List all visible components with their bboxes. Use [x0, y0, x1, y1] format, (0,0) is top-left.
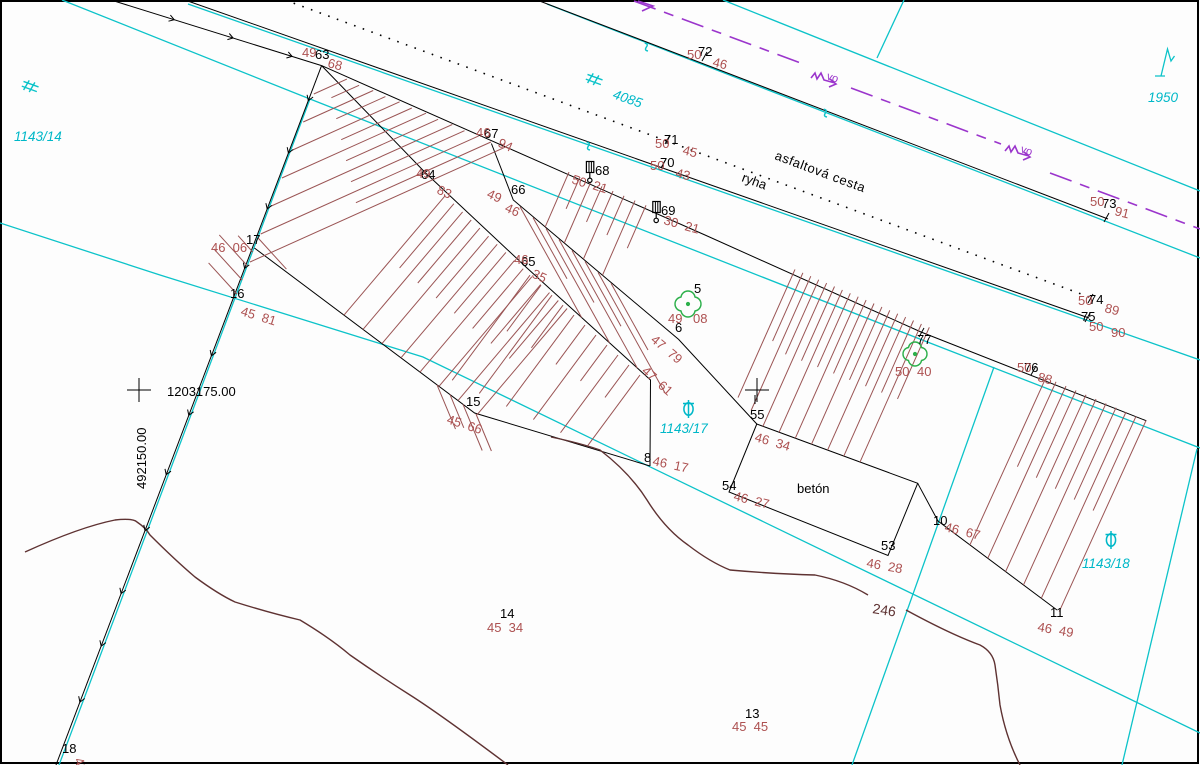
svg-text:15: 15 — [466, 394, 480, 409]
svg-text:55: 55 — [750, 407, 764, 422]
svg-text:14: 14 — [500, 606, 514, 621]
svg-text:49: 49 — [668, 311, 682, 326]
svg-text:11: 11 — [1050, 605, 1064, 620]
svg-text:50: 50 — [650, 158, 664, 173]
svg-text:betón: betón — [797, 481, 830, 496]
svg-text:50: 50 — [655, 136, 669, 151]
svg-text:50: 50 — [1078, 293, 1092, 308]
svg-text:53: 53 — [881, 538, 895, 553]
svg-text:45 45: 45 45 — [732, 719, 768, 734]
svg-text:50: 50 — [1090, 194, 1104, 209]
svg-text:1203175.00: 1203175.00 — [167, 384, 236, 399]
svg-text:18: 18 — [62, 741, 76, 756]
svg-text:50: 50 — [1017, 360, 1031, 375]
svg-text:77: 77 — [917, 332, 931, 347]
svg-text:50: 50 — [687, 47, 701, 62]
svg-text:46 06: 46 06 — [211, 240, 247, 255]
svg-text:49: 49 — [302, 45, 316, 60]
svg-text:1143/18: 1143/18 — [1082, 556, 1130, 571]
svg-text:08: 08 — [693, 311, 707, 326]
svg-text:45 34: 45 34 — [487, 620, 523, 635]
svg-text:49: 49 — [416, 166, 430, 181]
svg-text:50: 50 — [895, 364, 909, 379]
svg-text:46: 46 — [476, 125, 490, 140]
svg-text:8: 8 — [644, 450, 651, 465]
svg-text:16: 16 — [230, 286, 244, 301]
svg-text:5: 5 — [694, 281, 701, 296]
svg-text:50: 50 — [1089, 319, 1103, 334]
svg-text:40: 40 — [917, 364, 931, 379]
svg-text:1950: 1950 — [1148, 90, 1179, 105]
svg-text:492150.00: 492150.00 — [134, 428, 149, 489]
svg-text:17: 17 — [246, 232, 260, 247]
svg-text:90: 90 — [1111, 325, 1125, 340]
svg-text:63: 63 — [315, 47, 329, 62]
svg-text:66: 66 — [511, 182, 525, 197]
svg-text:1143/17: 1143/17 — [660, 421, 708, 436]
svg-text:68: 68 — [595, 163, 609, 178]
svg-text:46: 46 — [514, 252, 528, 267]
svg-text:1143/14: 1143/14 — [14, 129, 62, 144]
